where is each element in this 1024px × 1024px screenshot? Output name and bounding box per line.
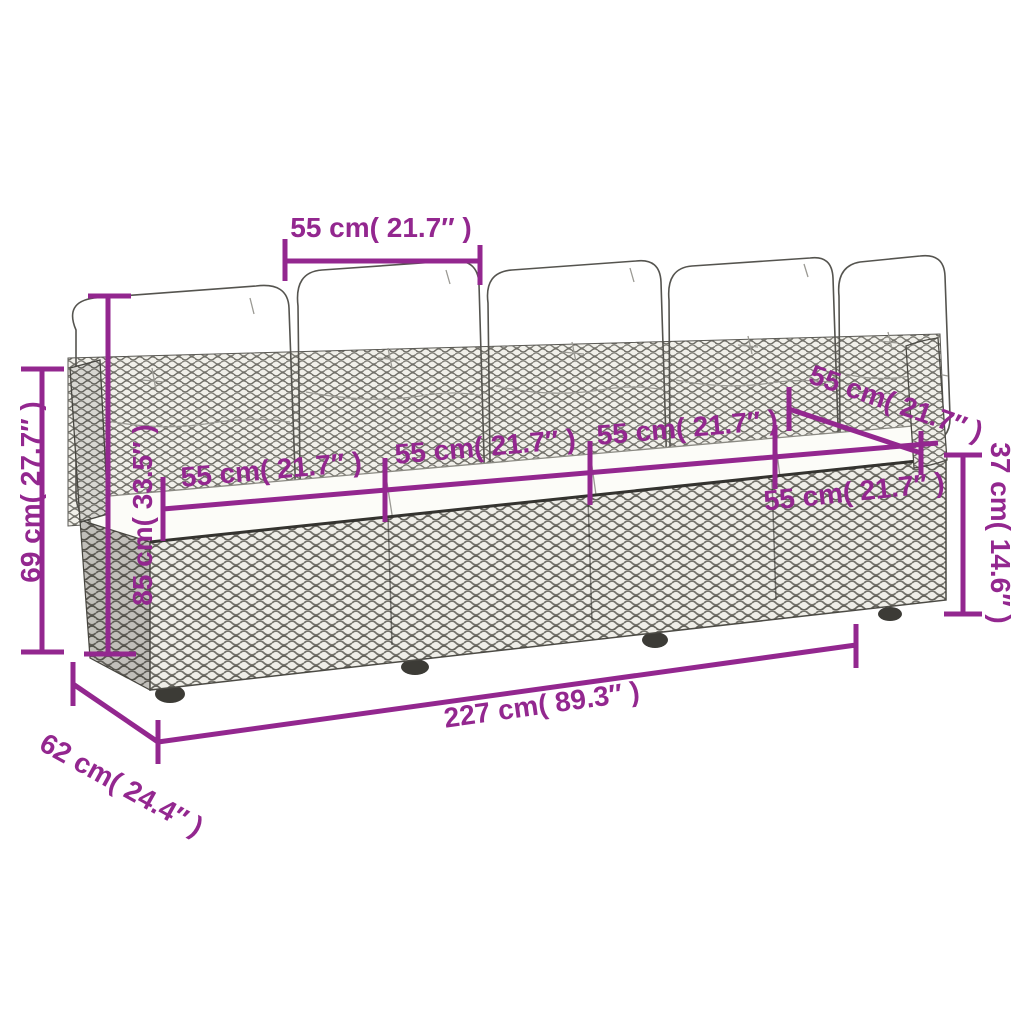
dim-line-seat-height — [944, 455, 982, 614]
dimension-seat-height: 37 cm( 14.6″ ) — [944, 442, 1016, 624]
dim-label-depth: 62 cm( 24.4″ ) — [35, 727, 209, 842]
dim-label-total-height: 85 cm( 33.5″ ) — [127, 424, 158, 606]
dimension-back-height: 69 cm( 27.7″ ) — [15, 369, 64, 652]
dim-line-top-back-width — [285, 239, 480, 285]
dim-label-back-height: 69 cm( 27.7″ ) — [15, 401, 46, 583]
dimension-top-back-width: 55 cm( 21.7″ ) — [285, 212, 480, 285]
dim-label-total-width: 227 cm( 89.3″ ) — [442, 676, 641, 734]
sofa-dimension-diagram: 55 cm( 21.7″ ) 69 cm( 27.7″ ) 85 cm( 33.… — [0, 0, 1024, 1024]
dim-label-top-back-width: 55 cm( 21.7″ ) — [290, 212, 472, 243]
dim-label-seat-height: 37 cm( 14.6″ ) — [985, 442, 1016, 624]
dimension-diagram-canvas: 55 cm( 21.7″ ) 69 cm( 27.7″ ) 85 cm( 33.… — [0, 0, 1024, 1024]
